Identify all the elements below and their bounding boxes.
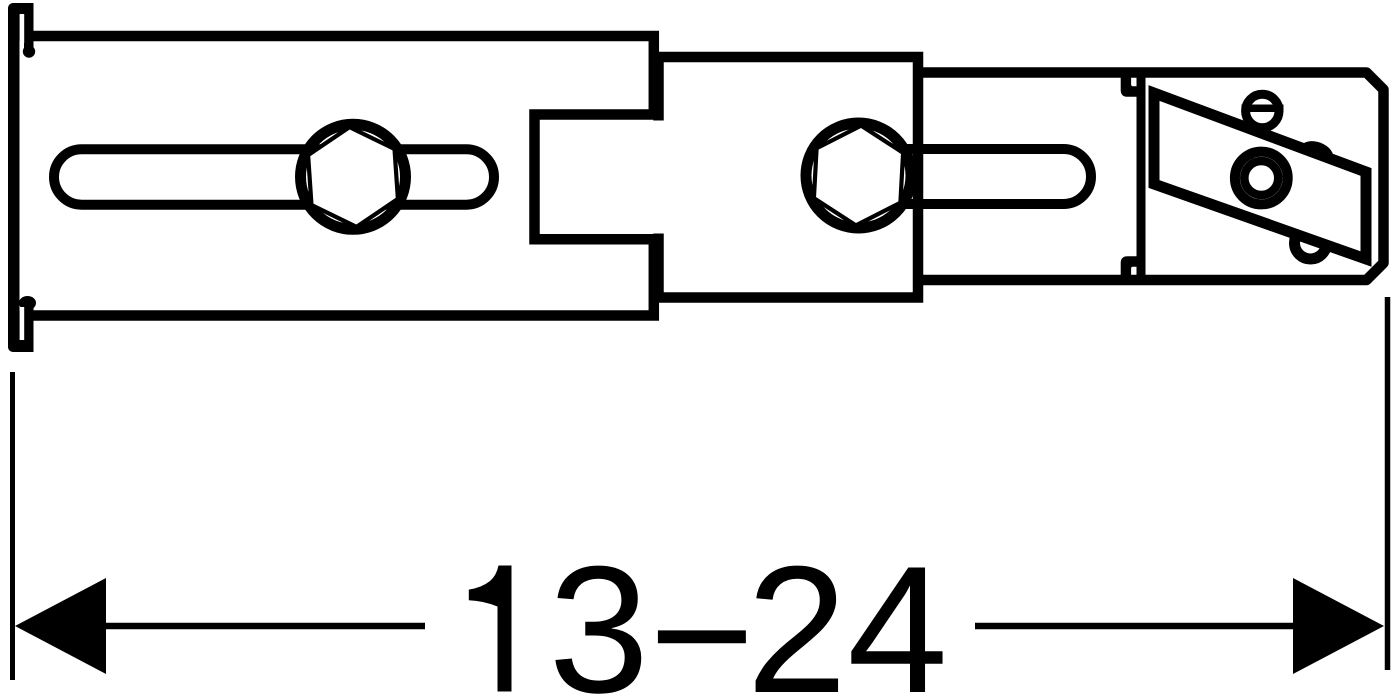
svg-text:24: 24 xyxy=(747,529,948,699)
svg-text:3: 3 xyxy=(549,529,650,699)
svg-text:−: − xyxy=(649,534,755,699)
